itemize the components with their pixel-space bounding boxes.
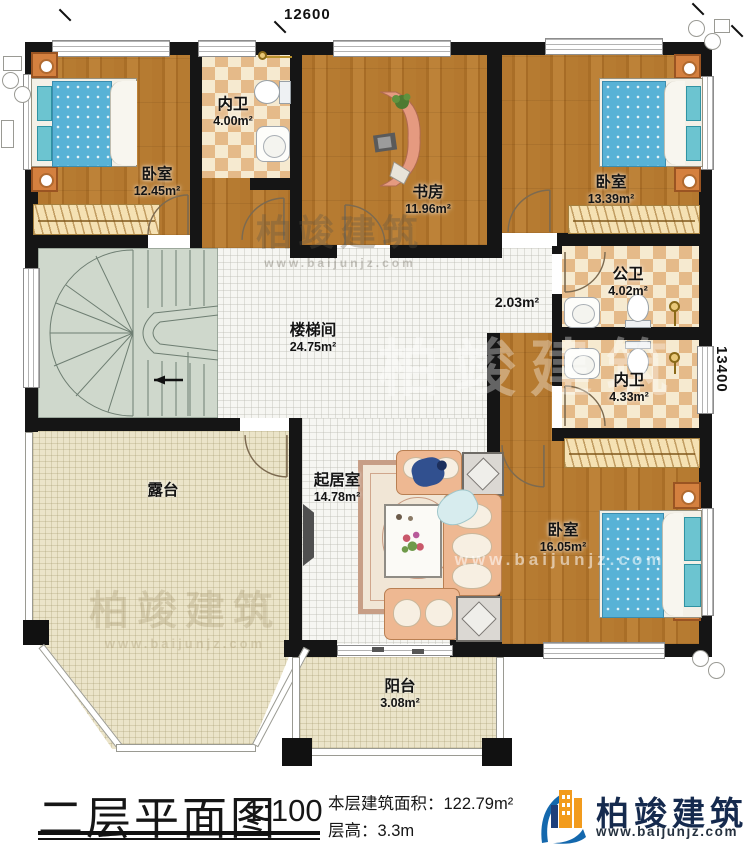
- corner-symbol: [714, 19, 730, 33]
- nightstand: [31, 52, 58, 78]
- corner-symbol: [692, 650, 709, 667]
- label-terrace: 露台: [147, 482, 178, 500]
- wall-study-left: [290, 42, 302, 258]
- brand-url: www.baijunjz.com: [596, 824, 738, 839]
- balcony-corner-block-left: [282, 738, 312, 766]
- bed-top-left: [31, 78, 137, 167]
- label-bedroom-tl: 卧室12.45m²: [134, 166, 181, 198]
- dimension-height: 13400: [713, 346, 730, 393]
- shower-pipe: [674, 310, 676, 326]
- toilet-tank: [279, 81, 291, 104]
- balcony-sliding-door: [337, 645, 453, 656]
- corner-symbol: [708, 662, 725, 679]
- floor-area-label: 本层建筑面积：: [328, 795, 444, 813]
- drawing-scale: 1:100: [245, 793, 323, 829]
- sink: [564, 348, 600, 379]
- window-bath-right: [697, 346, 714, 414]
- balcony-corner-block-right: [482, 738, 512, 766]
- coffee-table: [384, 504, 442, 578]
- floor-hallway-bedroom: [500, 333, 552, 441]
- window-stair-left: [23, 268, 40, 388]
- wall-study-bottom-a: [290, 245, 337, 258]
- sofa-bottom: [384, 588, 460, 640]
- wall-bathtop-left: [190, 54, 202, 235]
- title-underline-thick: [38, 831, 320, 835]
- wardrobe: [33, 204, 160, 235]
- bed-bottom-right: [599, 510, 702, 618]
- dimension-width: 12600: [284, 6, 331, 23]
- staircase: [38, 248, 218, 418]
- wall-living-bottom-a: [284, 640, 337, 657]
- corner-symbol: [14, 86, 31, 103]
- door-bath-top: [240, 196, 286, 242]
- toilet: [627, 294, 649, 322]
- window-bath-top: [198, 40, 256, 57]
- title-underline-thin: [38, 838, 320, 840]
- towel-bar: [266, 56, 292, 58]
- balcony-rail-bottom: [292, 748, 504, 756]
- wardrobe: [564, 438, 700, 468]
- wall-bedroomtl-bottom: [25, 235, 148, 248]
- terrace-corner-block: [23, 620, 49, 645]
- toilet: [254, 80, 280, 104]
- window-bedroom-br: [543, 642, 665, 659]
- corner-symbol: [1, 120, 14, 148]
- wall-living-bottom-b: [450, 640, 502, 657]
- nightstand: [673, 482, 701, 509]
- wall-terrace-top: [25, 418, 240, 431]
- nightstand: [674, 54, 701, 79]
- sink: [256, 126, 290, 162]
- wall-bedroomtl-bottom2: [190, 235, 202, 248]
- label-living: 起居室14.78m²: [314, 472, 361, 504]
- shower-head: [669, 352, 680, 363]
- corner-symbol: [688, 20, 705, 37]
- label-stairwell: 楼梯间24.75m²: [290, 322, 337, 354]
- door-bath-inner: [563, 384, 607, 428]
- side-table: [456, 596, 502, 642]
- wall-baths-left-top: [552, 246, 562, 254]
- study-desk: [366, 90, 422, 188]
- nightstand: [31, 166, 58, 192]
- label-study: 书房11.96m²: [405, 184, 451, 216]
- window-bedroom-tr: [545, 38, 663, 55]
- label-hallway-area: 2.03m²: [495, 294, 539, 310]
- floor-plan-sheet: 柏竣建筑 www.baijunjz.com 柏竣建筑 www.baijunjz.…: [0, 0, 750, 850]
- corner-symbol: [2, 72, 19, 89]
- label-balcony: 阳台3.08m²: [380, 678, 420, 710]
- label-bath-inner: 内卫4.33m²: [609, 372, 649, 404]
- floor-height-value: 3.3m: [378, 822, 415, 840]
- brand-logo-icon: [537, 785, 589, 845]
- bed-top-right: [599, 78, 703, 167]
- sliding-door-handle: [372, 647, 384, 652]
- dim-tick: [692, 3, 705, 16]
- door-bedroom-tr: [506, 188, 552, 234]
- corner-symbol: [3, 56, 22, 71]
- shower-head: [669, 301, 680, 312]
- door-bath-public: [563, 250, 607, 294]
- door-bedroom-br: [500, 443, 546, 489]
- wall-bedroomtr-left: [487, 42, 502, 245]
- door-bedroom-tl: [146, 193, 190, 237]
- label-bedroom-tr: 卧室13.39m²: [588, 174, 635, 206]
- dim-tick: [731, 25, 744, 38]
- label-bath-top: 内卫4.00m²: [213, 96, 253, 128]
- wardrobe: [568, 205, 700, 234]
- dim-tick: [59, 9, 72, 22]
- wall-bedroomtr-bottom: [557, 233, 712, 246]
- table-flowers: [397, 527, 429, 559]
- nightstand: [674, 167, 701, 192]
- floor-hall-lower: [216, 337, 487, 418]
- tv: [303, 504, 314, 566]
- window-bedroom-tl: [52, 40, 170, 57]
- sliding-door-handle: [412, 649, 424, 654]
- wall-baths-left-mid: [552, 294, 562, 386]
- wall-terrace-right: [289, 418, 302, 657]
- towel-ring: [258, 51, 267, 60]
- terrace-rail-left: [25, 432, 33, 624]
- window-study: [333, 40, 451, 57]
- door-study: [343, 203, 387, 247]
- door-terrace: [243, 433, 289, 479]
- floor-height-info: 层高：3.3m: [328, 817, 414, 841]
- sink: [564, 297, 600, 328]
- floor-area-info: 本层建筑面积：122.79m²: [328, 790, 513, 814]
- wall-study-bottom-b: [390, 245, 502, 258]
- floor-hall-upper: [216, 248, 552, 337]
- corner-symbol: [704, 33, 721, 50]
- floor-height-label: 层高：: [328, 822, 378, 840]
- terrace-rail-bottom: [116, 744, 256, 752]
- label-bedroom-br: 卧室16.05m²: [540, 522, 587, 554]
- floor-area-value: 122.79m²: [444, 795, 514, 813]
- label-bath-public: 公卫4.02m²: [608, 266, 648, 298]
- wall-baths-divider: [552, 327, 699, 340]
